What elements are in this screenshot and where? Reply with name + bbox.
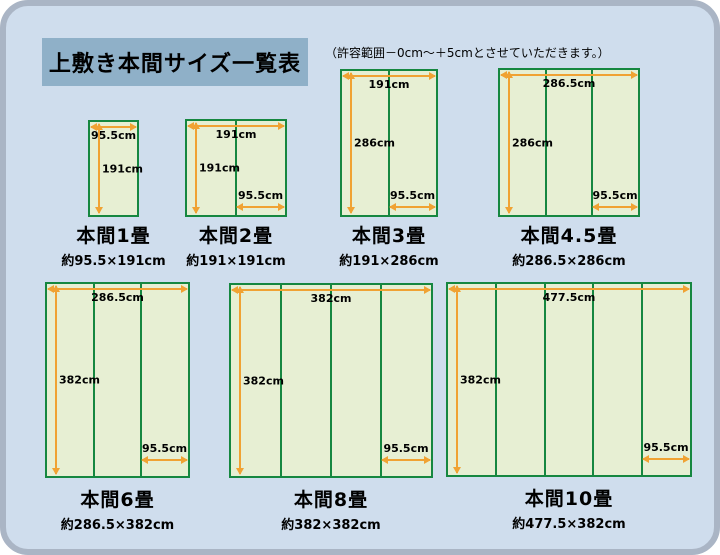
- width-dim-label: 286.5cm: [500, 78, 638, 89]
- diagram-name: 本間3畳: [339, 221, 438, 248]
- tolerance-note: （許容範囲－0cm～＋5cmとさせていただきます。）: [325, 44, 610, 61]
- diagram-honma-3jo: 191cm286cm95.5cm本間3畳約191×286cm: [340, 69, 438, 217]
- page-title: 上敷き本間サイズ一覧表: [49, 46, 301, 78]
- height-arrow: [195, 123, 197, 213]
- mat-divider: [330, 285, 332, 476]
- width-arrow: [188, 125, 284, 127]
- panel-width-arrow: [593, 206, 637, 208]
- diagram-size-label: 約191×191cm: [186, 250, 285, 269]
- panel-width-arrow: [382, 459, 430, 461]
- panel-width-dim-label: 95.5cm: [381, 443, 431, 454]
- diagram-size-label: 約95.5×191cm: [61, 250, 165, 269]
- diagram-honma-6jo: 286.5cm382cm95.5cm本間6畳約286.5×382cm: [45, 282, 190, 478]
- width-arrow: [501, 74, 637, 76]
- height-arrow: [508, 72, 510, 213]
- diagram-name: 本間8畳: [281, 485, 380, 512]
- height-dim-label: 382cm: [243, 375, 284, 386]
- height-arrow: [456, 286, 458, 473]
- content-layer: 上敷き本間サイズ一覧表 （許容範囲－0cm～＋5cmとさせていただきます。） 9…: [0, 0, 720, 555]
- height-dim-label: 286cm: [354, 138, 395, 149]
- mat-divider: [544, 284, 546, 475]
- tatami-mat: 191cm286cm95.5cm: [340, 69, 438, 217]
- diagram-name: 本間6畳: [61, 485, 174, 512]
- height-arrow: [239, 287, 241, 474]
- panel-width-arrow: [237, 206, 284, 208]
- diagram-honma-8jo: 382cm382cm95.5cm本間8畳約382×382cm: [229, 283, 433, 478]
- height-arrow: [98, 124, 100, 213]
- diagram-caption: 本間3畳約191×286cm: [339, 221, 438, 269]
- height-arrow: [350, 73, 352, 213]
- width-dim-label: 191cm: [187, 129, 285, 140]
- width-arrow: [48, 288, 187, 290]
- diagram-honma-10jo: 477.5cm382cm95.5cm本間10畳約477.5×382cm: [446, 282, 692, 477]
- diagram-name: 本間10畳: [512, 484, 625, 511]
- diagram-size-label: 約477.5×382cm: [512, 513, 625, 532]
- height-dim-label: 191cm: [102, 163, 143, 174]
- tatami-mat: 477.5cm382cm95.5cm: [446, 282, 692, 477]
- height-dim-label: 286cm: [512, 137, 553, 148]
- diagram-honma-4-5jo: 286.5cm286cm95.5cm本間4.5畳約286.5×286cm: [498, 68, 640, 217]
- diagram-name: 本間2畳: [186, 221, 285, 248]
- panel-width-dim-label: 95.5cm: [389, 190, 436, 201]
- tatami-mat: 286.5cm382cm95.5cm: [45, 282, 190, 478]
- tatami-mat: 95.5cm191cm: [88, 120, 139, 217]
- height-arrow: [55, 286, 57, 474]
- height-dim-label: 382cm: [460, 374, 501, 385]
- panel-width-arrow: [142, 459, 187, 461]
- diagram-caption: 本間2畳約191×191cm: [186, 221, 285, 269]
- title-box: 上敷き本間サイズ一覧表: [42, 38, 308, 86]
- width-dim-label: 286.5cm: [47, 292, 188, 303]
- width-dim-label: 191cm: [342, 79, 436, 90]
- diagram-size-label: 約382×382cm: [281, 514, 380, 533]
- width-dim-label: 477.5cm: [448, 292, 690, 303]
- tatami-mat: 382cm382cm95.5cm: [229, 283, 433, 478]
- diagram-honma-2jo: 191cm191cm95.5cm本間2畳約191×191cm: [185, 119, 287, 217]
- diagram-caption: 本間1畳約95.5×191cm: [61, 221, 165, 269]
- tatami-mat: 191cm191cm95.5cm: [185, 119, 287, 217]
- diagram-honma-1jo: 95.5cm191cm本間1畳約95.5×191cm: [88, 120, 139, 217]
- panel-width-dim-label: 95.5cm: [236, 190, 285, 201]
- height-dim-label: 382cm: [59, 375, 100, 386]
- diagram-caption: 本間6畳約286.5×382cm: [61, 485, 174, 533]
- panel-width-dim-label: 95.5cm: [642, 442, 690, 453]
- diagram-size-label: 約286.5×382cm: [61, 514, 174, 533]
- width-dim-label: 382cm: [231, 293, 431, 304]
- diagram-caption: 本間8畳約382×382cm: [281, 485, 380, 533]
- diagram-size-label: 約191×286cm: [339, 250, 438, 269]
- mat-divider: [592, 284, 594, 475]
- panel-width-arrow: [390, 206, 435, 208]
- diagram-size-label: 約286.5×286cm: [512, 250, 625, 269]
- width-arrow: [343, 75, 435, 77]
- diagram-caption: 本間10畳約477.5×382cm: [512, 484, 625, 532]
- width-arrow: [232, 289, 430, 291]
- diagram-name: 本間4.5畳: [512, 221, 625, 248]
- diagram-name: 本間1畳: [61, 221, 165, 248]
- panel-width-dim-label: 95.5cm: [141, 443, 188, 454]
- panel-width-dim-label: 95.5cm: [592, 190, 638, 201]
- tatami-mat: 286.5cm286cm95.5cm: [498, 68, 640, 217]
- height-dim-label: 191cm: [199, 163, 240, 174]
- panel-width-arrow: [643, 458, 689, 460]
- diagram-caption: 本間4.5畳約286.5×286cm: [512, 221, 625, 269]
- width-arrow: [449, 288, 689, 290]
